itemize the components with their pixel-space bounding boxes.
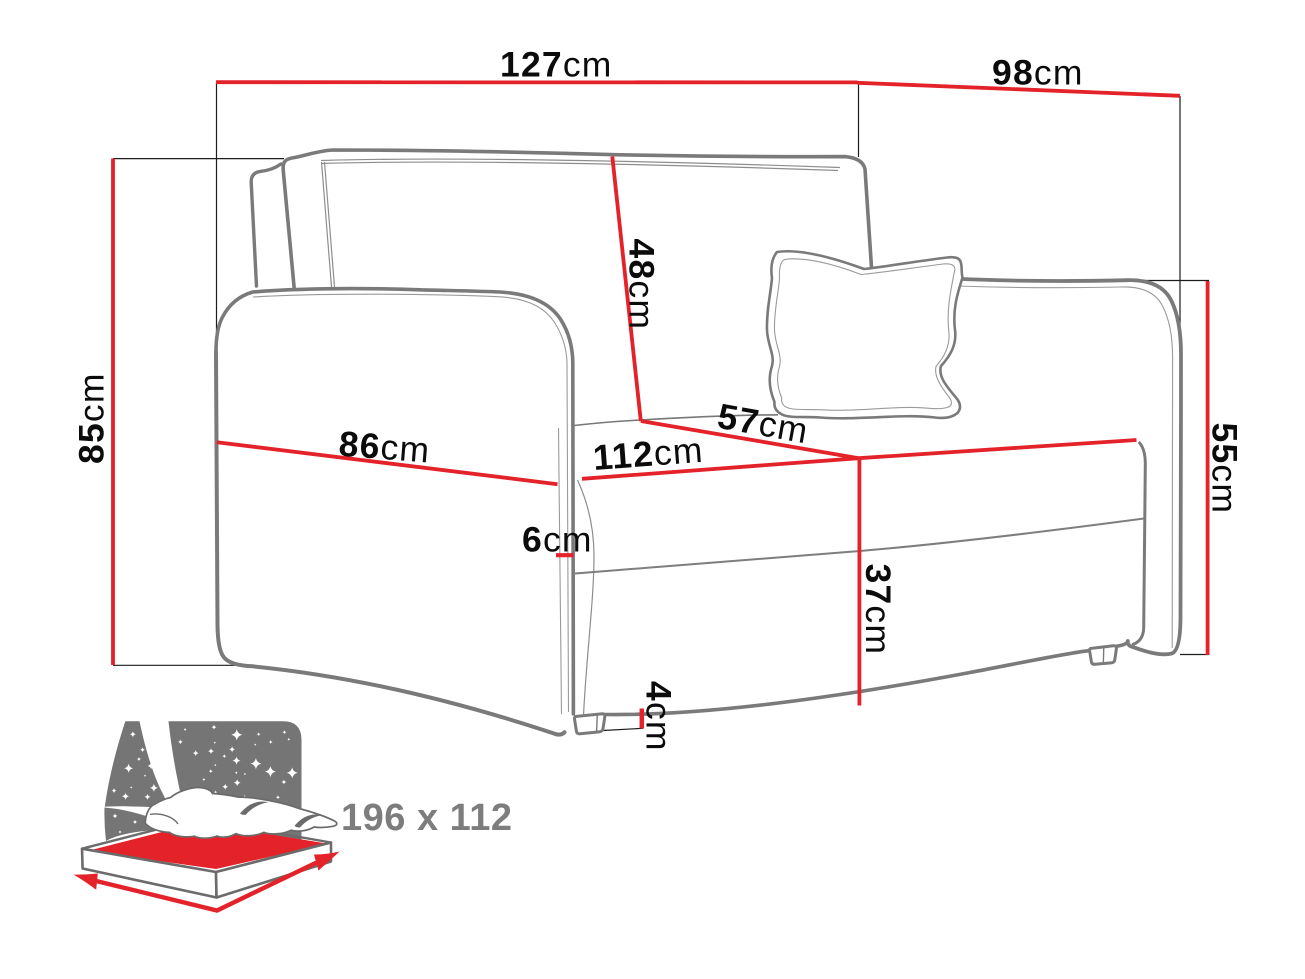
svg-text:86cm: 86cm xyxy=(337,424,431,471)
svg-text:48cm: 48cm xyxy=(622,239,662,331)
svg-text:37cm: 37cm xyxy=(858,564,898,656)
svg-text:4cm: 4cm xyxy=(639,681,679,752)
svg-text:196 x 112: 196 x 112 xyxy=(341,797,512,839)
svg-text:55cm: 55cm xyxy=(1205,423,1245,515)
svg-text:127cm: 127cm xyxy=(500,45,613,85)
svg-text:85cm: 85cm xyxy=(72,372,112,464)
svg-text:6cm: 6cm xyxy=(522,520,593,560)
svg-text:98cm: 98cm xyxy=(992,53,1084,93)
svg-text:112cm: 112cm xyxy=(592,430,705,478)
